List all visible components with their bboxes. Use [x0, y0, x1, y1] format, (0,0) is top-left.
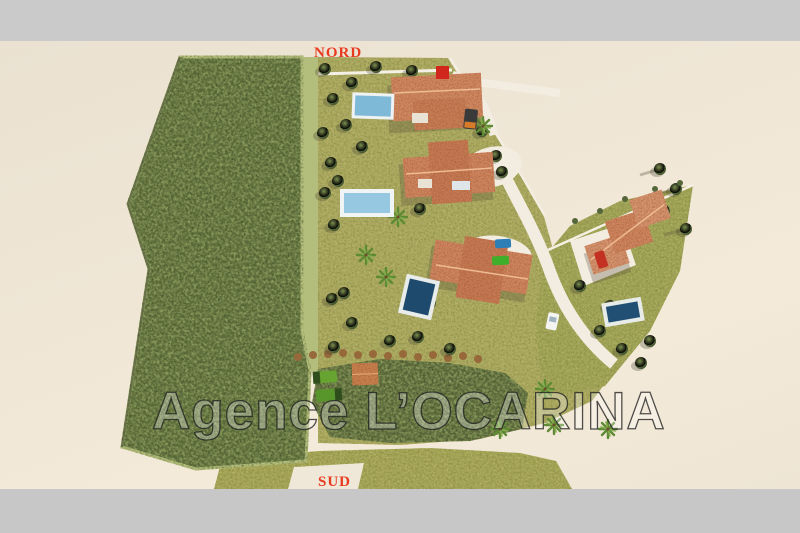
villa-1-wall [412, 113, 428, 123]
letterbox-bottom [0, 489, 800, 533]
red-marker-cube [436, 66, 449, 79]
south-label: SUD [318, 474, 351, 491]
villa-2-wall [418, 179, 432, 188]
site-plan-render: NORD SUD Agence L’OCARINA [0, 0, 800, 533]
pool-1 [352, 92, 395, 119]
pool-2 [340, 189, 394, 217]
forest-path [302, 57, 318, 373]
villa-2-window [452, 181, 470, 190]
north-label: NORD [314, 45, 362, 62]
agency-watermark: Agence L’OCARINA [152, 385, 712, 438]
letterbox-top [0, 0, 800, 41]
car-blue [495, 239, 511, 249]
car-dark-villa-1 [463, 108, 478, 129]
car-green [492, 256, 509, 266]
aerial-render-canvas: NORD SUD Agence L’OCARINA [0, 41, 800, 489]
